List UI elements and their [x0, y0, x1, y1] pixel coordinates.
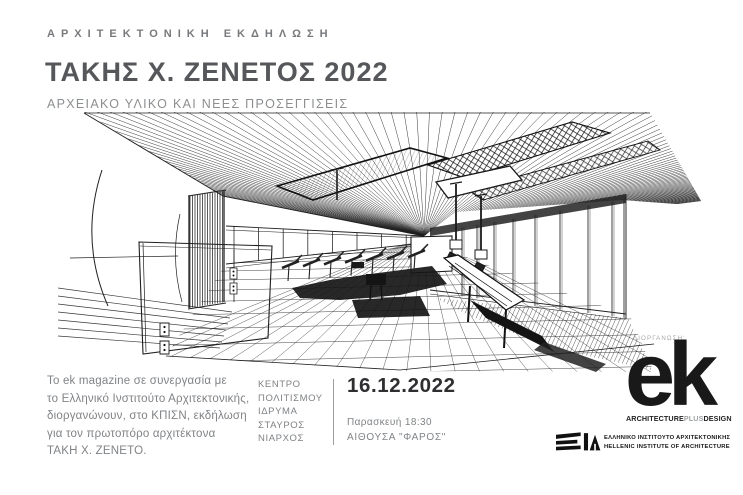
- hellenic-institute-logo-icon: [556, 431, 602, 455]
- description-line: Το ek magazine σε συνεργασία με: [47, 373, 249, 391]
- door-hardware: [230, 250, 237, 302]
- left-window-band: [234, 226, 406, 263]
- institute-name-greek: ΕΛΛΗΝΙΚΟ ΙΝΣΤΙΤΟΥΤΟ ΑΡΧΙΤΕΚΤΟΝΙΚΗΣ: [604, 434, 730, 443]
- page-subtitle: ΑΡΧΕΙΑΚΟ ΥΛΙΚΟ ΚΑΙ ΝΕΕΣ ΠΡΟΣΕΓΓΙΣΕΙΣ: [47, 97, 348, 111]
- glass-screen: [139, 242, 272, 354]
- vertical-divider: [333, 379, 334, 445]
- venue-line: ΙΔΡΥΜΑ: [258, 405, 323, 419]
- event-description: Το ek magazine σε συνεργασία με το Ελλην…: [47, 373, 249, 461]
- event-hall: ΑΙΘΟΥΣΑ "ΦΑΡΟΣ": [347, 432, 446, 443]
- event-poster: ΑΡΧΙΤΕΚΤΟΝΙΚΗ ΕΚΔΗΛΩΣΗ ΤΑΚΗΣ Χ. ΖΕΝΕΤΟΣ …: [0, 0, 743, 495]
- ek-tagline: ARCHITECTUREPLUSDESIGN: [626, 414, 732, 423]
- venue-name: ΚΕΝΤΡΟ ΠΟΛΙΤΙΣΜΟΥ ΙΔΡΥΜΑ ΣΤΑΥΡΟΣ ΝΙΑΡΧΟΣ: [258, 378, 323, 446]
- tagline-plus: PLUS: [684, 414, 704, 423]
- tagline-design: DESIGN: [703, 414, 731, 423]
- venue-line: ΠΟΛΙΤΙΣΜΟΥ: [258, 392, 323, 406]
- event-day-time: Παρασκευή 18:30: [347, 417, 432, 428]
- venue-line: ΚΕΝΤΡΟ: [258, 378, 323, 392]
- shadow-center: [352, 296, 430, 318]
- page-title: ΤΑΚΗΣ Χ. ΖΕΝΕΤΟΣ 2022: [45, 57, 388, 88]
- venue-line: ΣΤΑΥΡΟΣ: [258, 419, 323, 433]
- description-line: για τον πρωτοπόρο αρχιτέκτονα: [47, 426, 249, 444]
- curved-wall-arcs: [70, 170, 182, 306]
- event-date: 16.12.2022: [347, 374, 456, 398]
- venue-line: ΝΙΑΡΧΟΣ: [258, 432, 323, 446]
- institute-name-english: HELLENIC INSTITUTE OF ARCHITECTURE: [604, 443, 730, 452]
- description-line: διοργανώνουν, στο ΚΠΙΣΝ, εκδήλωση: [47, 408, 249, 426]
- description-line: το Ελληνικό Ινστιτούτο Αρχιτεκτονικής,: [47, 391, 249, 409]
- description-line: ΤΑΚΗ Χ. ΖΕΝΕΤΟ.: [47, 443, 249, 461]
- ek-logo: ek: [625, 337, 711, 413]
- tagline-architecture: ARCHITECTURE: [626, 414, 684, 423]
- institute-name: ΕΛΛΗΝΙΚΟ ΙΝΣΤΙΤΟΥΤΟ ΑΡΧΙΤΕΚΤΟΝΙΚΗΣ HELLE…: [604, 434, 730, 452]
- event-type-label: ΑΡΧΙΤΕΚΤΟΝΙΚΗ ΕΚΔΗΛΩΣΗ: [47, 28, 334, 40]
- left-window-rails: [226, 226, 424, 268]
